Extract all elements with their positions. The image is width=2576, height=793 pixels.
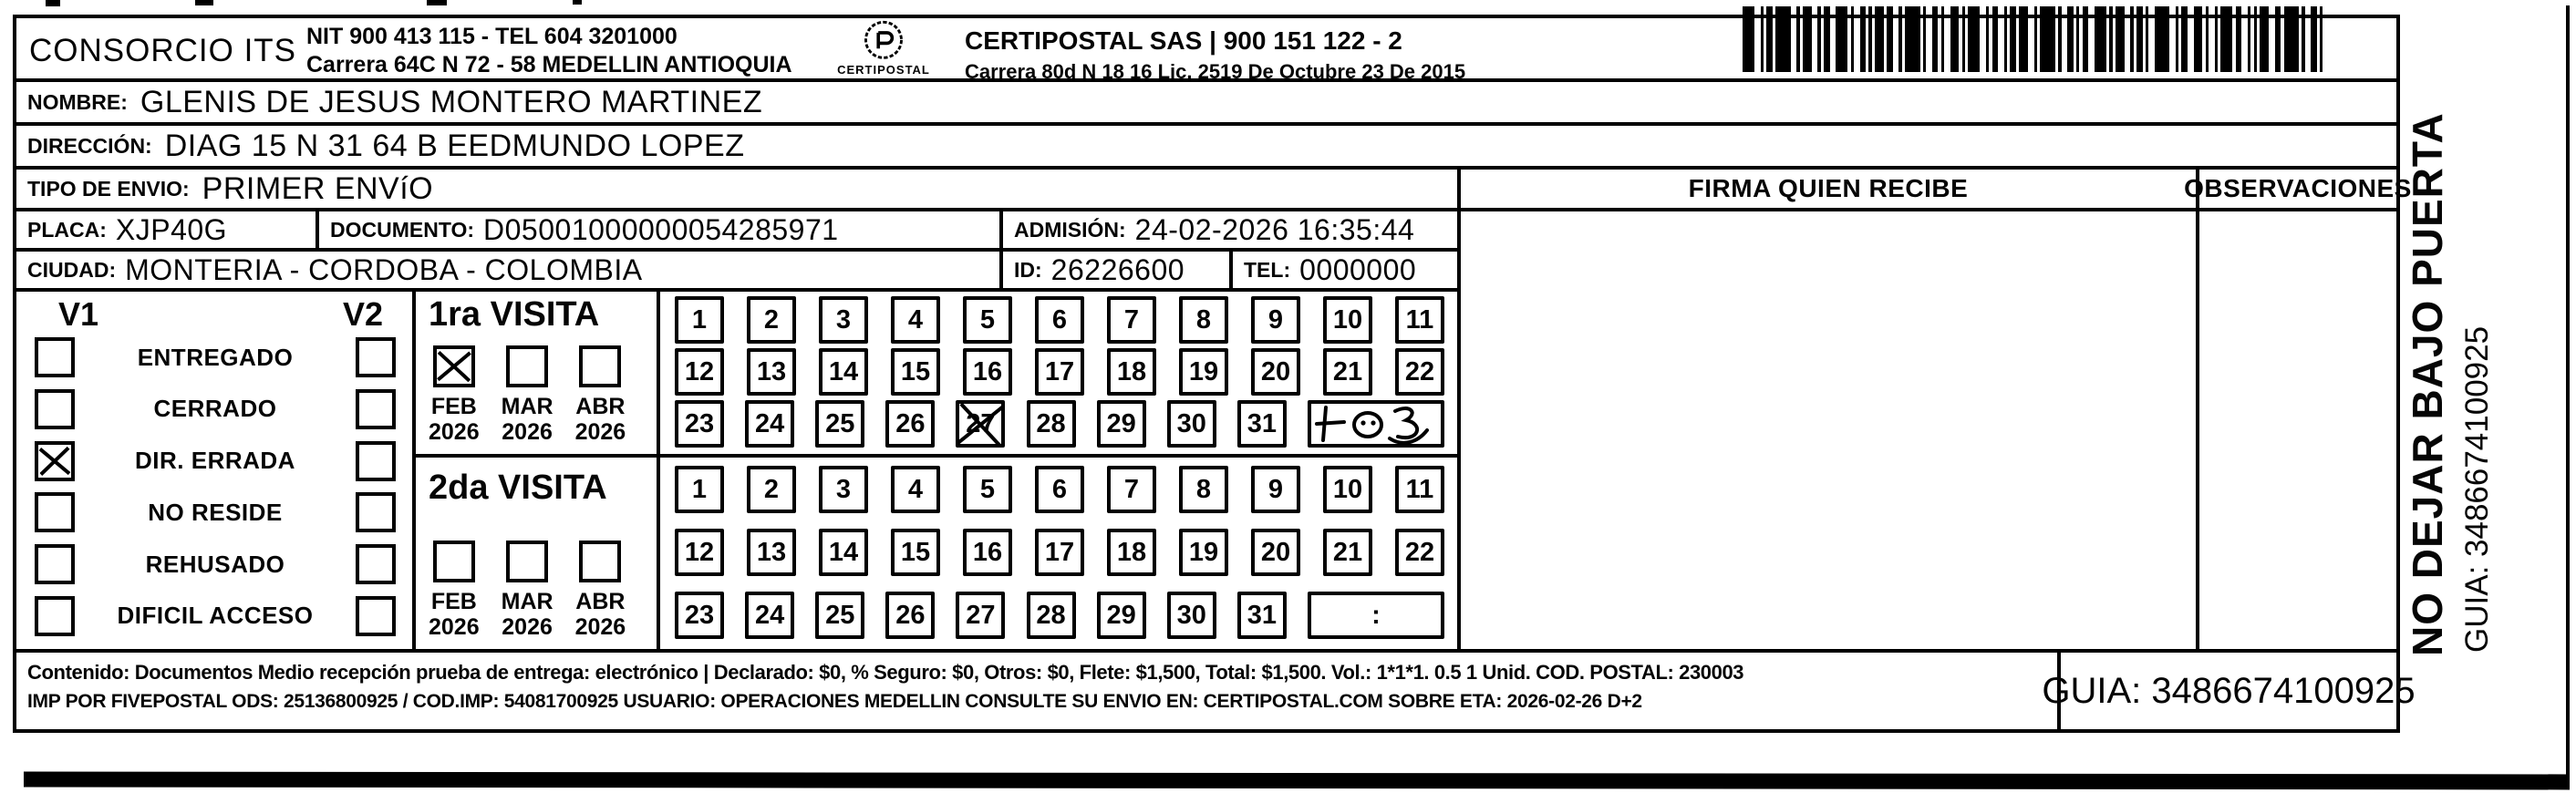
visit-column-headers: V1 V2 <box>35 295 396 334</box>
nombre-row: NOMBRE: GLENIS DE JESUS MONTERO MARTINEZ <box>16 82 2396 126</box>
placa-cell: PLACA: XJP40G <box>16 211 319 248</box>
day-cell-crossed-27: 27 <box>956 400 1005 448</box>
day-cell: 19 <box>1179 529 1228 576</box>
day-cell: 5 <box>963 466 1012 513</box>
day-cell: 10 <box>1323 466 1372 513</box>
second-visit-calendar: 1 2 3 4 5 6 7 8 9 10 <box>660 458 1457 649</box>
day-cell: 29 <box>1097 400 1146 448</box>
guia-number: GUIA: 3486674100925 <box>2061 653 2396 729</box>
status-label: NO RESIDE <box>75 499 356 527</box>
status-row-no-reside: NO RESIDE <box>35 492 396 532</box>
day-cell: 7 <box>1107 296 1156 344</box>
day-cell: 10 <box>1323 296 1372 344</box>
status-label: DIFICIL ACCESO <box>75 602 356 630</box>
status-column: V1 V2 ENTREGADO CERRADO <box>16 292 416 649</box>
ciudad-row: CIUDAD: MONTERIA - CORDOBA - COLOMBIA ID… <box>16 252 1457 292</box>
day-cell: 4 <box>891 466 940 513</box>
day-cell: 16 <box>963 529 1012 576</box>
second-visit-title: 2da VISITA <box>429 469 657 508</box>
day-cell: 24 <box>745 400 794 448</box>
side-warning: NO DEJAR BAJO PUERTA GUIA: 3486674100925 <box>2403 36 2521 656</box>
status-label: ENTREGADO <box>75 344 356 372</box>
ciudad-value: MONTERIA - CORDOBA - COLOMBIA <box>125 253 642 287</box>
footer-line1: Contenido: Documentos Medio recepción pr… <box>27 661 2057 685</box>
status-label: CERRADO <box>75 395 356 423</box>
tel-cell: TEL: 0000000 <box>1233 252 1457 288</box>
v1-checkbox-rehusado <box>35 544 75 584</box>
label-header: CONSORCIO ITS NIT 900 413 115 - TEL 604 … <box>16 18 2396 82</box>
day-cell: 20 <box>1251 529 1300 576</box>
month-abr-2026: ABR2026 <box>575 541 626 640</box>
id-cell: ID: 26226600 <box>1003 252 1233 288</box>
direccion-label: DIRECCIÓN: <box>27 134 152 159</box>
company-info: NIT 900 413 115 - TEL 604 3201000 Carrer… <box>306 23 792 80</box>
first-visit-months: FEB2026 MAR2026 ABR2026 <box>429 345 657 445</box>
day-row: 1 2 3 4 5 6 7 8 9 10 <box>675 296 1444 344</box>
v1-checkbox-no-reside <box>35 492 75 532</box>
documento-cell: DOCUMENTO: D05001000000054285971 <box>319 211 1003 248</box>
ciudad-cell: CIUDAD: MONTERIA - CORDOBA - COLOMBIA <box>16 252 1003 288</box>
shipping-label-scan: CONSORCIO ITS NIT 900 413 115 - TEL 604 … <box>0 0 2576 793</box>
day-cell: 31 <box>1237 400 1287 448</box>
day-cell: 13 <box>747 529 796 576</box>
day-cell: 4 <box>891 296 940 344</box>
day-cell: 30 <box>1167 400 1216 448</box>
side-guia-number: GUIA: 3486674100925 <box>2459 36 2496 656</box>
operator-name: CERTIPOSTAL SAS | 900 151 122 - 2 <box>965 26 1465 56</box>
admision-value: 24-02-2026 16:35:44 <box>1135 213 1415 247</box>
handwritten-mark <box>1311 404 1441 444</box>
day-cell: 15 <box>891 348 940 396</box>
day-cell: 22 <box>1395 529 1444 576</box>
month-label: MAR2026 <box>502 589 553 640</box>
v2-checkbox-rehusado <box>356 544 396 584</box>
month-checkbox-mar <box>506 345 548 387</box>
admision-cell: ADMISIÓN: 24-02-2026 16:35:44 <box>1003 211 1457 248</box>
day-cell: 19 <box>1179 348 1228 396</box>
scan-noise <box>46 0 60 6</box>
day-cell: 27 <box>956 592 1005 639</box>
time-box: : <box>1308 592 1444 639</box>
handwritten-date-box <box>1308 400 1444 448</box>
day-cell: 26 <box>885 592 935 639</box>
day-cell: 2 <box>747 466 796 513</box>
firma-blank-area <box>1461 211 2196 649</box>
day-cell: 3 <box>819 466 868 513</box>
v2-checkbox-dir-errada <box>356 441 396 481</box>
day-cell: 21 <box>1323 348 1372 396</box>
firma-header: FIRMA QUIEN RECIBE <box>1461 170 2196 211</box>
day-cell: 9 <box>1251 466 1300 513</box>
footer-fineprint: Contenido: Documentos Medio recepción pr… <box>16 653 2061 729</box>
day-cell: 18 <box>1107 348 1156 396</box>
day-cell: 28 <box>1027 400 1076 448</box>
day-cell: 23 <box>675 592 724 639</box>
certipostal-emblem-icon <box>860 18 907 66</box>
day-cell: 9 <box>1251 296 1300 344</box>
day-cell: 22 <box>1395 348 1444 396</box>
month-checkbox-abr <box>579 345 621 387</box>
day-row: 1 2 3 4 5 6 7 8 9 10 <box>675 466 1444 513</box>
day-cell: 3 <box>819 296 868 344</box>
day-cell: 5 <box>963 296 1012 344</box>
day-cell: 29 <box>1097 592 1146 639</box>
day-row: 23 24 25 26 27 28 29 30 31 : <box>675 592 1444 639</box>
month-label: ABR2026 <box>575 394 626 445</box>
second-visit-info: 2da VISITA FEB2026 MAR2026 <box>416 458 660 649</box>
day-cell: 6 <box>1035 466 1084 513</box>
label-footer: Contenido: Documentos Medio recepción pr… <box>16 649 2396 729</box>
month-feb-2026: FEB2026 <box>429 345 480 445</box>
day-cell: 11 <box>1395 296 1444 344</box>
day-cell: 1 <box>675 466 724 513</box>
footer-line2: IMP POR FIVEPOSTAL ODS: 25136800925 / CO… <box>27 691 2057 713</box>
scan-noise <box>195 0 213 5</box>
scan-edge-bottom <box>24 772 2570 790</box>
day-cell: 18 <box>1107 529 1156 576</box>
barcode <box>1743 6 2333 72</box>
certipostal-logo: CERTIPOSTAL <box>823 18 944 81</box>
direccion-row: DIRECCIÓN: DIAG 15 N 31 64 B EEDMUNDO LO… <box>16 126 2396 170</box>
v1-checkbox-dificil-acceso <box>35 596 75 636</box>
day-row: 12 13 14 15 16 17 18 19 20 21 <box>675 529 1444 576</box>
day-cell: 7 <box>1107 466 1156 513</box>
observaciones-blank-area <box>2199 211 2396 649</box>
day-cell: 24 <box>745 592 794 639</box>
day-cell: 12 <box>675 348 724 396</box>
second-visit-months: FEB2026 MAR2026 ABR2026 <box>429 541 657 640</box>
left-section: TIPO DE ENVIO: PRIMER ENVíO PLACA: XJP40… <box>16 170 1461 649</box>
day-cell: 6 <box>1035 296 1084 344</box>
month-checkbox-feb <box>433 541 475 582</box>
day-cell: 13 <box>747 348 796 396</box>
day-cell: 20 <box>1251 348 1300 396</box>
day-cell: 8 <box>1179 466 1228 513</box>
scan-noise <box>427 0 447 5</box>
status-row-dir-errada: DIR. ERRADA <box>35 441 396 481</box>
day-cell: 31 <box>1237 592 1287 639</box>
nombre-value: GLENIS DE JESUS MONTERO MARTINEZ <box>140 85 762 120</box>
status-label: REHUSADO <box>75 551 356 579</box>
first-visit-info: 1ra VISITA FEB2026 MAR2026 <box>416 292 660 454</box>
company-nit: NIT 900 413 115 - TEL 604 3201000 <box>306 23 792 51</box>
month-label: FEB2026 <box>429 394 480 445</box>
day-row: 12 13 14 15 16 17 18 19 20 21 <box>675 348 1444 396</box>
first-visit-section: 1ra VISITA FEB2026 MAR2026 <box>416 292 1457 458</box>
tel-label: TEL: <box>1244 258 1290 283</box>
month-label: FEB2026 <box>429 589 480 640</box>
admision-label: ADMISIÓN: <box>1014 218 1126 242</box>
status-row-entregado: ENTREGADO <box>35 337 396 377</box>
day-cell: 25 <box>815 592 864 639</box>
right-section: FIRMA QUIEN RECIBE OBSERVACIONES <box>1461 170 2396 649</box>
direccion-value: DIAG 15 N 31 64 B EEDMUNDO LOPEZ <box>165 129 745 164</box>
month-checkbox-mar <box>506 541 548 582</box>
day-cell: 17 <box>1035 529 1084 576</box>
visits-wrap: 1ra VISITA FEB2026 MAR2026 <box>416 292 1457 649</box>
tel-value: 0000000 <box>1299 253 1416 287</box>
v1-checkbox-dir-errada <box>35 441 75 481</box>
visit-status-section: V1 V2 ENTREGADO CERRADO <box>16 292 1457 649</box>
day-cell: 25 <box>815 400 864 448</box>
day-cell: 17 <box>1035 348 1084 396</box>
documento-value: D05001000000054285971 <box>483 213 839 247</box>
no-dejar-bajo-puerta-text: NO DEJAR BAJO PUERTA <box>2403 36 2452 656</box>
day-cell: 11 <box>1395 466 1444 513</box>
id-value: 26226600 <box>1051 253 1185 287</box>
day-cell: 26 <box>885 400 935 448</box>
logo-subline <box>848 78 919 81</box>
month-abr-2026: ABR2026 <box>575 345 626 445</box>
day-cell: 12 <box>675 529 724 576</box>
day-cell: 16 <box>963 348 1012 396</box>
day-cell: 1 <box>675 296 724 344</box>
first-visit-calendar: 1 2 3 4 5 6 7 8 9 10 <box>660 292 1457 454</box>
month-checkbox-feb <box>433 345 475 387</box>
tipo-envio-label: TIPO DE ENVIO: <box>27 177 190 201</box>
month-feb-2026: FEB2026 <box>429 541 480 640</box>
documento-label: DOCUMENTO: <box>330 218 474 242</box>
status-row-rehusado: REHUSADO <box>35 544 396 584</box>
month-mar-2026: MAR2026 <box>502 345 553 445</box>
label-frame: CONSORCIO ITS NIT 900 413 115 - TEL 604 … <box>13 15 2400 733</box>
label-middle: TIPO DE ENVIO: PRIMER ENVíO PLACA: XJP40… <box>16 170 2396 649</box>
nombre-label: NOMBRE: <box>27 90 128 115</box>
placa-documento-row: PLACA: XJP40G DOCUMENTO: D05001000000054… <box>16 211 1457 252</box>
logo-text: CERTIPOSTAL <box>823 63 944 77</box>
day-cell: 23 <box>675 400 724 448</box>
observaciones-column: OBSERVACIONES <box>2199 170 2396 649</box>
v1-checkbox-entregado <box>35 337 75 377</box>
status-row-cerrado: CERRADO <box>35 389 396 429</box>
v1-header: V1 <box>58 295 98 334</box>
tipo-envio-value: PRIMER ENVíO <box>202 171 433 207</box>
scan-noise <box>573 0 582 5</box>
ciudad-label: CIUDAD: <box>27 258 116 283</box>
v2-checkbox-entregado <box>356 337 396 377</box>
day-cell: 14 <box>819 348 868 396</box>
v2-checkbox-no-reside <box>356 492 396 532</box>
firma-column: FIRMA QUIEN RECIBE <box>1461 170 2199 649</box>
day-cell: 8 <box>1179 296 1228 344</box>
day-cell: 15 <box>891 529 940 576</box>
day-cell: 28 <box>1027 592 1076 639</box>
v1-checkbox-cerrado <box>35 389 75 429</box>
status-row-dificil-acceso: DIFICIL ACCESO <box>35 596 396 636</box>
month-checkbox-abr <box>579 541 621 582</box>
month-label: MAR2026 <box>502 394 553 445</box>
placa-value: XJP40G <box>116 213 227 247</box>
day-cell: 30 <box>1167 592 1216 639</box>
placa-label: PLACA: <box>27 218 107 242</box>
day-cell: 14 <box>819 529 868 576</box>
first-visit-title: 1ra VISITA <box>429 295 657 335</box>
id-label: ID: <box>1014 258 1042 283</box>
scan-edge-right <box>2566 5 2570 788</box>
tipo-envio-row: TIPO DE ENVIO: PRIMER ENVíO <box>16 170 1457 211</box>
operator-address: Carrera 80d N 18 16 Lic. 2519 De Octubre… <box>965 60 1465 84</box>
v2-checkbox-dificil-acceso <box>356 596 396 636</box>
observaciones-header: OBSERVACIONES <box>2199 170 2396 211</box>
day-cell: 2 <box>747 296 796 344</box>
day-row: 23 24 25 26 27 28 29 30 31 <box>675 400 1444 448</box>
day-cell: 21 <box>1323 529 1372 576</box>
status-rows: ENTREGADO CERRADO DIR. ERRADA <box>35 337 396 636</box>
v2-checkbox-cerrado <box>356 389 396 429</box>
v2-header: V2 <box>343 295 383 334</box>
operator-info: CERTIPOSTAL SAS | 900 151 122 - 2 Carrer… <box>965 26 1465 84</box>
month-label: ABR2026 <box>575 589 626 640</box>
company-address: Carrera 64C N 72 - 58 MEDELLIN ANTIOQUIA <box>306 51 792 79</box>
second-visit-section: 2da VISITA FEB2026 MAR2026 <box>416 458 1457 649</box>
company-name: CONSORCIO ITS <box>29 33 296 69</box>
status-label: DIR. ERRADA <box>75 447 356 475</box>
month-mar-2026: MAR2026 <box>502 541 553 640</box>
